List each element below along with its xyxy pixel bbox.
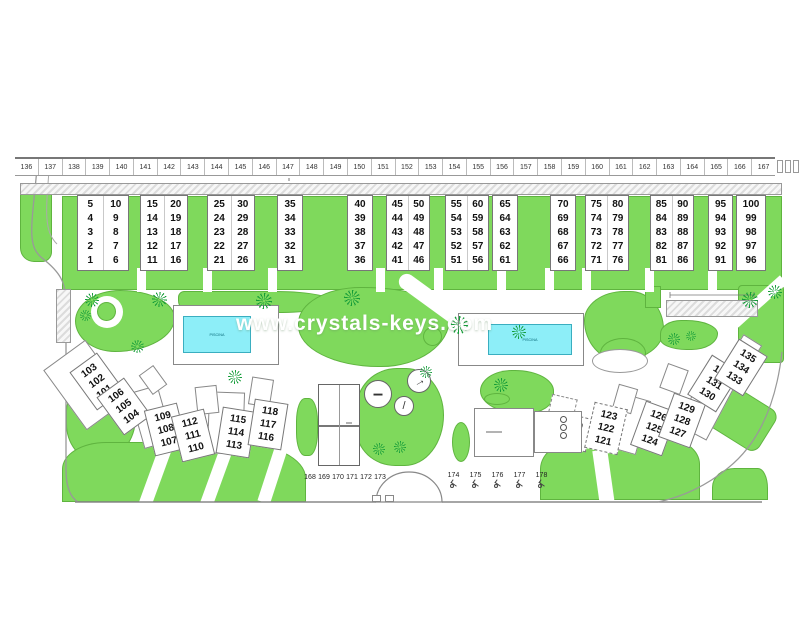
parking-space-number: 156 <box>490 159 514 175</box>
unit-number: 86 <box>677 256 688 266</box>
unit-number: 27 <box>237 242 248 252</box>
palm-icon <box>131 340 144 353</box>
unit-number: 93 <box>715 228 726 238</box>
unit-column: 2524232221 <box>208 196 231 270</box>
unit-number: 68 <box>557 228 568 238</box>
parking-space-number: 170 <box>331 474 345 481</box>
unit-column: 5554535251 <box>446 196 467 270</box>
moto-parking-space: 175 <box>467 472 484 488</box>
unit-number: 51 <box>451 256 462 266</box>
unit-number: 67 <box>557 242 568 252</box>
unit-number: 97 <box>745 242 756 252</box>
pool-2-water: PISCINA <box>488 324 572 355</box>
unit-number: 79 <box>612 214 623 224</box>
unit-number: 16 <box>170 256 181 266</box>
unit-column: 10099989796 <box>737 196 765 270</box>
parking-space-number: 160 <box>585 159 609 175</box>
unit-column: 6564636261 <box>493 196 517 270</box>
unit-number: 56 <box>472 256 483 266</box>
spa-building <box>474 408 534 457</box>
moto-parking-space: 176 <box>489 472 506 488</box>
parking-space-number: 161 <box>609 159 633 175</box>
unit-number: 43 <box>392 228 403 238</box>
parking-space-number: 150 <box>347 159 371 175</box>
unit-number: 45 <box>392 200 403 210</box>
palm-icon <box>256 293 272 309</box>
unit-number: 76 <box>612 256 623 266</box>
unit-number: 13 <box>147 228 158 238</box>
parking-space-number: 159 <box>561 159 585 175</box>
bottom-parking-right: 174 175 176 177 178 <box>445 472 550 488</box>
apartment-block: 6564636261 <box>492 195 518 271</box>
unit-number: 25 <box>214 200 225 210</box>
parking-space-number: 148 <box>299 159 323 175</box>
parking-slot-unnumbered <box>777 160 783 173</box>
unit-number: 73 <box>591 228 602 238</box>
palm-icon <box>394 441 406 453</box>
moto-parking-space: 174 <box>445 472 462 488</box>
palm-icon <box>742 292 758 308</box>
parking-ruler: 1361371381391401411421431441451461471481… <box>15 157 775 176</box>
unit-number: 75 <box>591 200 602 210</box>
unit-number: 54 <box>451 214 462 224</box>
moto-parking-space: 177 <box>511 472 528 488</box>
unit-number: 55 <box>451 200 462 210</box>
parking-space-number: 145 <box>228 159 252 175</box>
unit-number: 88 <box>677 228 688 238</box>
unit-column: 5049484746 <box>408 196 430 270</box>
parking-space-number: 151 <box>371 159 395 175</box>
unit-number: 53 <box>451 228 462 238</box>
unit-number: 9 <box>113 214 119 224</box>
unit-column: 4039383736 <box>348 196 372 270</box>
unit-number: 3 <box>87 228 93 238</box>
unit-number: 35 <box>284 200 295 210</box>
unit-number: 84 <box>656 214 667 224</box>
parking-space-number: 144 <box>204 159 228 175</box>
unit-number: 66 <box>557 256 568 266</box>
unit-number: 24 <box>214 214 225 224</box>
parking-space-number: 155 <box>466 159 490 175</box>
unit-number: 47 <box>413 242 424 252</box>
palm-icon <box>686 331 696 341</box>
unit-number: 99 <box>745 214 756 224</box>
parking-space-number: 157 <box>513 159 537 175</box>
parking-space-number: 139 <box>85 159 109 175</box>
spa-dot <box>560 424 567 431</box>
spa-label-smudge <box>486 431 502 433</box>
apartment-block: 7069686766 <box>550 195 576 271</box>
parking-space-number: 166 <box>727 159 751 175</box>
unit-number: 14 <box>147 214 158 224</box>
unit-number: 5 <box>87 200 93 210</box>
parking-space-number: 153 <box>418 159 442 175</box>
unit-number: 41 <box>392 256 403 266</box>
spa-annex <box>534 411 582 453</box>
parking-space-number: 137 <box>38 159 62 175</box>
parking-space-number: 149 <box>323 159 347 175</box>
parking-space-number: 163 <box>656 159 680 175</box>
unit-column: 8079787776 <box>607 196 629 270</box>
parking-space-number: 147 <box>276 159 300 175</box>
unit-number: 98 <box>745 228 756 238</box>
unit-number: 28 <box>237 228 248 238</box>
unit-column: 2019181716 <box>164 196 188 270</box>
unit-number: 83 <box>656 228 667 238</box>
unit-number: 33 <box>284 228 295 238</box>
apartment-block: 9594939291 <box>708 195 733 271</box>
parking-space-number: 177 <box>511 472 528 479</box>
apartment-block: 8584838281 9089888786 <box>650 195 694 271</box>
unit-number: 70 <box>557 200 568 210</box>
scooter-icon <box>515 480 524 488</box>
unit-number: 52 <box>451 242 462 252</box>
unit-number: 50 <box>413 200 424 210</box>
palm-icon <box>80 310 91 321</box>
parking-space-number: 169 <box>317 474 331 481</box>
spa-dot <box>560 416 567 423</box>
parking-space-number: 168 <box>303 474 317 481</box>
apartment-block: 2524232221 3029282726 <box>207 195 255 271</box>
parking-slot-unnumbered <box>785 160 791 173</box>
unit-number: 72 <box>591 242 602 252</box>
unit-number: 61 <box>499 256 510 266</box>
unit-number: 64 <box>499 214 510 224</box>
parking-space-number: 162 <box>632 159 656 175</box>
unit-column: 7574737271 <box>586 196 607 270</box>
unit-column: 9594939291 <box>709 196 732 270</box>
unit-number: 49 <box>413 214 424 224</box>
apartment-block: 4039383736 <box>347 195 373 271</box>
unit-number: 96 <box>745 256 756 266</box>
unit-number: 100 <box>743 200 760 210</box>
unit-number: 48 <box>413 228 424 238</box>
unit-column: 54321 <box>78 196 103 270</box>
parking-space-number: 172 <box>359 474 373 481</box>
unit-number: 59 <box>472 214 483 224</box>
unit-number: 71 <box>591 256 602 266</box>
unit-number: 46 <box>413 256 424 266</box>
unit-number: 65 <box>499 200 510 210</box>
pool-2-label: PISCINA <box>522 337 537 342</box>
palm-icon <box>152 292 167 307</box>
unit-number: 42 <box>392 242 403 252</box>
unit-number: 22 <box>214 242 225 252</box>
parking-space-number: 152 <box>395 159 419 175</box>
unit-number: 81 <box>656 256 667 266</box>
apartment-block: 118117116 <box>248 399 289 451</box>
parking-space-number: 140 <box>109 159 133 175</box>
playground-table-icon <box>364 380 392 408</box>
unit-number: 58 <box>472 228 483 238</box>
parking-space-number: 173 <box>373 474 387 481</box>
unit-number: 20 <box>170 200 181 210</box>
playground-slide-icon <box>394 396 414 416</box>
unit-number: 17 <box>170 242 181 252</box>
unit-number: 32 <box>284 242 295 252</box>
palm-icon <box>494 378 508 392</box>
unit-number: 1 <box>87 256 93 266</box>
bottom-parking-left: 168169170171172173 <box>303 474 387 481</box>
unit-number: 23 <box>214 228 225 238</box>
apartment-block: 7574737271 8079787776 <box>585 195 629 271</box>
unit-number: 37 <box>354 242 365 252</box>
fence-box <box>385 495 394 502</box>
unit-number: 21 <box>214 256 225 266</box>
palm-icon <box>85 293 99 307</box>
court-label-smudge <box>346 422 352 424</box>
promenade-strip <box>20 183 782 195</box>
unit-number: 6 <box>113 256 119 266</box>
unit-column: 3534333231 <box>278 196 302 270</box>
parking-space-number: 154 <box>442 159 466 175</box>
palm-icon <box>668 333 680 345</box>
unit-number: 44 <box>392 214 403 224</box>
parking-space-number: 146 <box>252 159 276 175</box>
unit-number: 19 <box>170 214 181 224</box>
unit-number: 91 <box>715 256 726 266</box>
parking-space-number: 164 <box>680 159 704 175</box>
unit-number: 4 <box>87 214 93 224</box>
moto-parking-space: 178 <box>533 472 550 488</box>
parking-space-number: 174 <box>445 472 462 479</box>
unit-number: 15 <box>147 200 158 210</box>
unit-number: 26 <box>237 256 248 266</box>
unit-column: 3029282726 <box>231 196 255 270</box>
unit-number: 63 <box>499 228 510 238</box>
apartment-block: 1514131211 2019181716 <box>140 195 188 271</box>
unit-number: 10 <box>110 200 121 210</box>
unit-number: 8 <box>113 228 119 238</box>
unit-number: 82 <box>656 242 667 252</box>
parking-space-number: 171 <box>345 474 359 481</box>
unit-number: 38 <box>354 228 365 238</box>
parking-space-number: 176 <box>489 472 506 479</box>
palm-icon <box>768 285 782 299</box>
palm-icon <box>420 366 432 378</box>
scooter-icon <box>449 480 458 488</box>
pool-1-label: PISCINA <box>209 332 224 337</box>
apartment-block: 5554535251 6059585756 <box>445 195 489 271</box>
unit-number: 2 <box>87 242 93 252</box>
unit-column: 9089888786 <box>672 196 694 270</box>
unit-number: 94 <box>715 214 726 224</box>
unit-number: 36 <box>354 256 365 266</box>
unit-column: 109876 <box>103 196 129 270</box>
unit-number: 78 <box>612 228 623 238</box>
pergola-left <box>56 289 71 343</box>
unit-number: 87 <box>677 242 688 252</box>
parking-space-number: 178 <box>533 472 550 479</box>
unit-number: 62 <box>499 242 510 252</box>
fence-box <box>372 495 381 502</box>
watermark: www.crystals-keys.com <box>236 312 493 336</box>
unit-number: 80 <box>612 200 623 210</box>
parking-space-number: 143 <box>180 159 204 175</box>
unit-number: 39 <box>354 214 365 224</box>
unit-number: 69 <box>557 214 568 224</box>
apartment-block: 54321 109876 <box>77 195 129 271</box>
parking-space-number: 158 <box>537 159 561 175</box>
unit-number: 90 <box>677 200 688 210</box>
unit-number: 92 <box>715 242 726 252</box>
unit-number: 18 <box>170 228 181 238</box>
unit-number: 30 <box>237 200 248 210</box>
unit-column: 7069686766 <box>551 196 575 270</box>
tennis-court <box>318 384 360 466</box>
unit-number: 95 <box>715 200 726 210</box>
unit-column: 1514131211 <box>141 196 164 270</box>
palm-icon <box>228 370 242 384</box>
spa-dot <box>560 432 567 439</box>
scooter-icon <box>493 480 502 488</box>
unit-number: 89 <box>677 214 688 224</box>
parking-slot-unnumbered <box>793 160 799 173</box>
palm-icon <box>344 290 360 306</box>
apartment-block: 4544434241 5049484746 <box>386 195 430 271</box>
palm-icon <box>373 443 385 455</box>
unit-number: 77 <box>612 242 623 252</box>
parking-space-number: 142 <box>157 159 181 175</box>
unit-number: 7 <box>113 242 119 252</box>
parking-space-number: 165 <box>704 159 728 175</box>
unit-number: 40 <box>354 200 365 210</box>
unit-number: 60 <box>472 200 483 210</box>
parking-space-number: 141 <box>133 159 157 175</box>
apartment-block: 10099989796 <box>736 195 766 271</box>
unit-column: 6059585756 <box>467 196 489 270</box>
unit-number: 29 <box>237 214 248 224</box>
unit-number: 34 <box>284 214 295 224</box>
site-plan: 1361371381391401411421431441451461471481… <box>0 0 800 640</box>
unit-column: 4544434241 <box>387 196 408 270</box>
unit-column: 8584838281 <box>651 196 672 270</box>
scooter-icon <box>537 480 546 488</box>
palm-icon <box>512 325 526 339</box>
parking-space-number: 175 <box>467 472 484 479</box>
unit-number: 12 <box>147 242 158 252</box>
unit-number: 74 <box>591 214 602 224</box>
apartment-block: 3534333231 <box>277 195 303 271</box>
parking-space-number: 138 <box>62 159 86 175</box>
unit-number: 57 <box>472 242 483 252</box>
scooter-icon <box>471 480 480 488</box>
parking-space-number: 136 <box>15 159 38 175</box>
unit-number: 85 <box>656 200 667 210</box>
unit-number: 11 <box>147 256 158 266</box>
unit-number: 31 <box>284 256 295 266</box>
parking-space-number: 167 <box>751 159 775 175</box>
